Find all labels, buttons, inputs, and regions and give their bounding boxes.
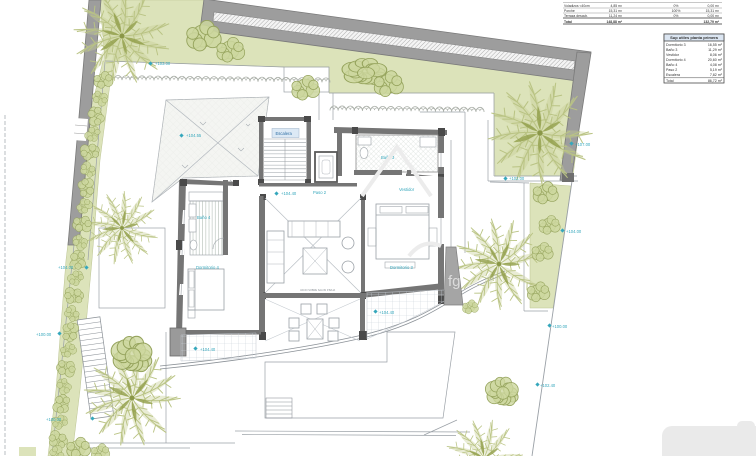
svg-text:+102.00: +102.00 [509, 176, 525, 181]
svg-text:Escalera: Escalera [666, 73, 680, 77]
svg-text:0%: 0% [674, 4, 679, 8]
svg-text:Sup utiles planta primera: Sup utiles planta primera [670, 35, 719, 40]
svg-text:16,55 m²: 16,55 m² [708, 43, 723, 47]
svg-text:100%: 100% [672, 9, 681, 13]
svg-text:VACIO SOBRE SALON P.BAJA: VACIO SOBRE SALON P.BAJA [300, 289, 336, 292]
svg-text:Total: Total [564, 20, 572, 24]
svg-text:+107.00: +107.00 [575, 142, 591, 147]
svg-text:+104.40: +104.40 [379, 310, 395, 315]
svg-text:Dormitorio 4: Dormitorio 4 [666, 58, 686, 62]
svg-text:Baño 3: Baño 3 [666, 48, 677, 52]
svg-text:0,00 m²: 0,00 m² [708, 14, 720, 18]
svg-text:Paso 2: Paso 2 [313, 190, 327, 195]
svg-text:5,19 m²: 5,19 m² [710, 68, 723, 72]
svg-text:+104.55: +104.55 [186, 133, 202, 138]
svg-text:4,08 m²: 4,08 m² [710, 63, 723, 67]
svg-text:86,72 m²: 86,72 m² [708, 79, 723, 83]
svg-text:148,88 m²: 148,88 m² [607, 20, 623, 24]
svg-text:+100.00: +100.00 [46, 417, 62, 422]
svg-text:Vestidor: Vestidor [399, 187, 415, 192]
svg-text:Dormitorio 4: Dormitorio 4 [196, 265, 219, 270]
svg-text:+100.00: +100.00 [36, 332, 52, 337]
svg-text:+103.00: +103.00 [155, 61, 171, 66]
svg-text:8,06 m²: 8,06 m² [710, 53, 723, 57]
svg-text:Paso 2: Paso 2 [666, 68, 677, 72]
svg-text:7,82 m²: 7,82 m² [710, 73, 723, 77]
svg-text:11,29 m²: 11,29 m² [708, 48, 723, 52]
svg-text:0,00 m²: 0,00 m² [708, 4, 720, 8]
svg-text:Terraza descub.: Terraza descub. [564, 14, 588, 18]
svg-text:Voladizos <40cm: Voladizos <40cm [564, 4, 590, 8]
svg-text:15,31 m²: 15,31 m² [609, 9, 623, 13]
svg-text:+102.40: +102.40 [540, 383, 556, 388]
svg-text:4,85 m²: 4,85 m² [611, 4, 623, 8]
svg-text:132,79 m²: 132,79 m² [704, 20, 720, 24]
svg-text:Baño 4: Baño 4 [666, 63, 677, 67]
svg-text:+100.00: +100.00 [552, 324, 568, 329]
svg-text:+104.00: +104.00 [58, 265, 74, 270]
svg-text:15,31 m²: 15,31 m² [706, 9, 720, 13]
svg-text:+104.00: +104.00 [566, 229, 582, 234]
svg-text:Dormitorio 3: Dormitorio 3 [666, 43, 686, 47]
svg-text:+104.40: +104.40 [200, 347, 216, 352]
svg-text:11,24 m²: 11,24 m² [609, 14, 623, 18]
svg-text:Baño 4: Baño 4 [197, 215, 211, 220]
svg-text:0%: 0% [674, 14, 679, 18]
svg-text:Escalera: Escalera [276, 131, 293, 136]
svg-text:Porche: Porche [564, 9, 575, 13]
svg-text:20,60 m²: 20,60 m² [708, 58, 723, 62]
svg-text:Dormitorio 3: Dormitorio 3 [390, 265, 413, 270]
svg-text:+104.40: +104.40 [281, 191, 297, 196]
svg-text:Vestidor: Vestidor [666, 53, 680, 57]
svg-text:fg: fg [448, 273, 461, 290]
svg-text:Total: Total [666, 79, 674, 83]
